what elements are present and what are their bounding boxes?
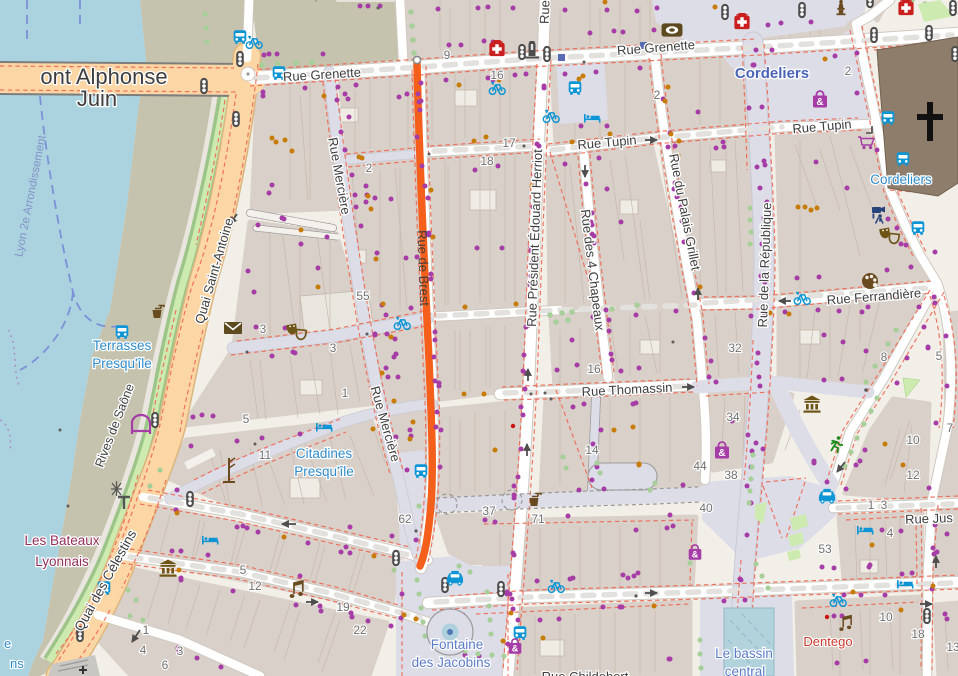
svg-text:14: 14 [585, 443, 599, 457]
svg-text:38: 38 [724, 468, 738, 482]
svg-text:13: 13 [946, 640, 958, 654]
svg-text:Les Bateaux: Les Bateaux [24, 533, 99, 548]
svg-text:1: 1 [143, 623, 150, 637]
svg-text:17: 17 [502, 136, 516, 150]
svg-text:53: 53 [818, 542, 832, 556]
svg-text:Juin: Juin [77, 86, 117, 111]
svg-text:6: 6 [162, 658, 169, 672]
svg-text:10: 10 [879, 610, 893, 624]
svg-text:8: 8 [881, 350, 888, 364]
svg-text:55: 55 [356, 289, 370, 303]
svg-text:62: 62 [398, 512, 412, 526]
svg-text:1: 1 [868, 498, 875, 512]
svg-text:Le bassin: Le bassin [715, 646, 773, 661]
svg-text:3: 3 [260, 322, 267, 336]
svg-text:1: 1 [342, 386, 349, 400]
svg-text:Dentego: Dentego [803, 634, 852, 649]
svg-text:Rue Childebert: Rue Childebert [542, 669, 629, 676]
svg-text:71: 71 [531, 512, 545, 526]
svg-text:des Jacobins: des Jacobins [412, 655, 491, 670]
svg-text:Rue: Rue [537, 0, 553, 24]
svg-text:32: 32 [728, 341, 742, 355]
svg-text:16: 16 [587, 362, 601, 376]
svg-text:Lyonnais: Lyonnais [35, 554, 89, 569]
svg-text:Citadines: Citadines [296, 446, 353, 461]
svg-text:10: 10 [906, 433, 920, 447]
svg-text:2: 2 [366, 161, 373, 175]
svg-text:Terrasses: Terrasses [93, 338, 152, 353]
svg-text:2: 2 [654, 88, 661, 102]
svg-text:9: 9 [444, 48, 451, 62]
svg-text:7: 7 [947, 421, 954, 435]
svg-text:3: 3 [330, 341, 337, 355]
svg-text:19: 19 [336, 600, 350, 614]
svg-text:22: 22 [353, 623, 367, 637]
svg-text:e: e [4, 636, 11, 651]
svg-text:Cordeliers: Cordeliers [870, 172, 932, 187]
svg-text:2: 2 [845, 64, 852, 78]
svg-text:central: central [725, 664, 766, 676]
svg-text:4: 4 [887, 526, 894, 540]
svg-text:12: 12 [906, 468, 920, 482]
svg-text:16: 16 [490, 68, 504, 82]
svg-text:Cordeliers: Cordeliers [735, 65, 809, 82]
svg-text:Presqu'île: Presqu'île [92, 356, 152, 371]
svg-text:40: 40 [699, 501, 713, 515]
svg-text:34: 34 [726, 410, 740, 424]
svg-text:5: 5 [243, 412, 250, 426]
svg-text:Rue Jus: Rue Jus [905, 510, 954, 527]
svg-text:5: 5 [240, 563, 247, 577]
svg-text:12: 12 [248, 579, 262, 593]
svg-text:3: 3 [881, 498, 888, 512]
svg-text:3: 3 [177, 644, 184, 658]
svg-text:37: 37 [482, 504, 496, 518]
svg-text:4: 4 [140, 643, 147, 657]
svg-text:44: 44 [693, 459, 707, 473]
svg-text:5: 5 [936, 349, 943, 363]
svg-text:11: 11 [259, 448, 272, 462]
svg-text:Presqu'île: Presqu'île [294, 464, 354, 479]
svg-text:ns: ns [10, 656, 24, 671]
svg-text:18: 18 [480, 154, 494, 168]
svg-text:Rue de Brest: Rue de Brest [415, 230, 433, 307]
svg-text:18: 18 [911, 627, 925, 641]
svg-text:Fontaine: Fontaine [431, 637, 484, 652]
